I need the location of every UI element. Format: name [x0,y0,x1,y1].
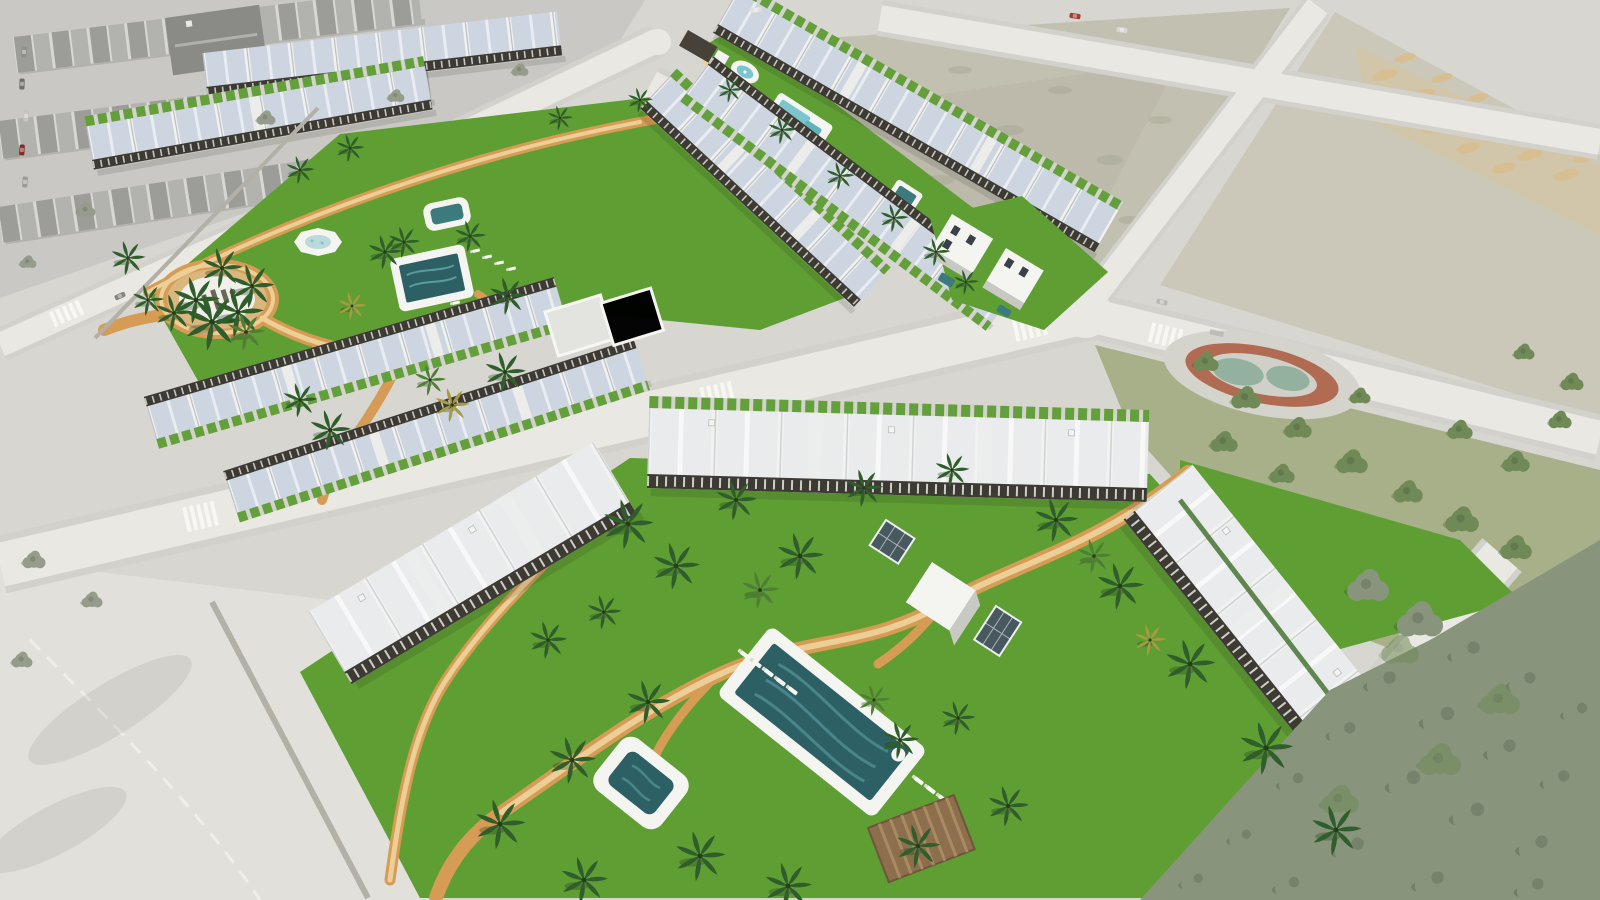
phase1-splash-pad [294,228,342,256]
render-canvas [0,0,1600,900]
aerial-render [0,0,1600,900]
